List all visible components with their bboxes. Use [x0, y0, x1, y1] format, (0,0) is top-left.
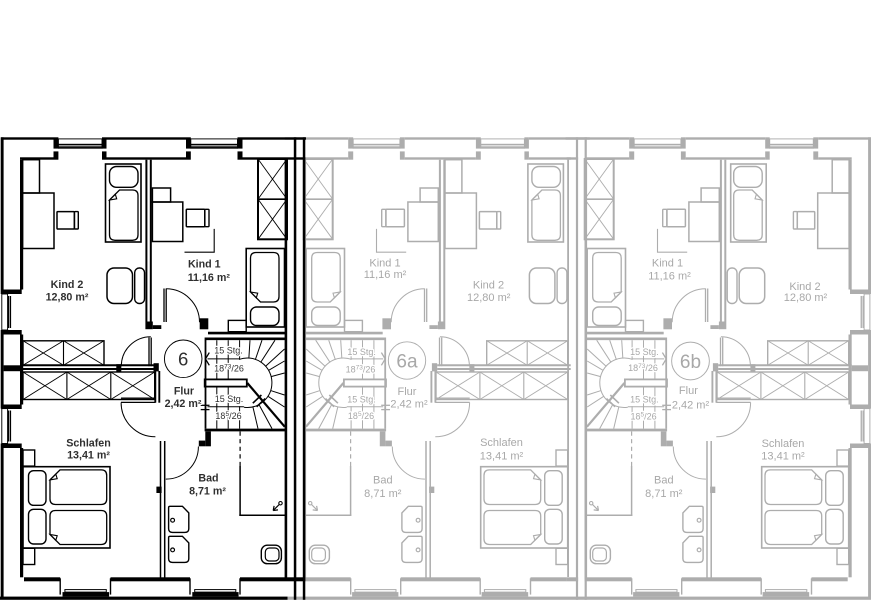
svg-text:6b: 6b: [680, 352, 701, 373]
svg-text:Bad: Bad: [198, 473, 218, 485]
svg-text:15 Stg.: 15 Stg.: [214, 346, 243, 356]
svg-text:8,71 m²: 8,71 m²: [645, 488, 683, 500]
svg-text:Schlafen: Schlafen: [762, 438, 805, 450]
svg-text:185/26: 185/26: [348, 411, 374, 421]
svg-text:2,42 m²: 2,42 m²: [672, 399, 710, 411]
svg-text:1873/26: 1873/26: [214, 364, 244, 374]
svg-text:Kind 1: Kind 1: [369, 258, 400, 270]
svg-text:Bad: Bad: [654, 474, 674, 486]
svg-text:Kind 2: Kind 2: [789, 281, 820, 293]
svg-text:Kind 1: Kind 1: [188, 259, 221, 271]
svg-text:15 Stg.: 15 Stg.: [347, 395, 376, 405]
svg-text:15 Stg.: 15 Stg.: [347, 347, 376, 357]
svg-text:Flur: Flur: [398, 386, 417, 398]
svg-text:12,80 m²: 12,80 m²: [467, 292, 511, 304]
svg-text:Kind 2: Kind 2: [51, 279, 84, 291]
svg-text:13,41 m²: 13,41 m²: [67, 449, 110, 461]
svg-text:12,80 m²: 12,80 m²: [46, 291, 89, 303]
svg-text:8,71 m²: 8,71 m²: [189, 485, 226, 497]
svg-text:15 Stg.: 15 Stg.: [630, 395, 659, 405]
svg-text:13,41 m²: 13,41 m²: [761, 451, 805, 463]
svg-text:1873/26: 1873/26: [346, 365, 376, 375]
svg-text:6: 6: [178, 348, 188, 369]
svg-text:8,71 m²: 8,71 m²: [364, 488, 402, 500]
svg-text:Flur: Flur: [679, 385, 698, 397]
svg-text:Schlafen: Schlafen: [480, 437, 523, 449]
svg-text:13,41 m²: 13,41 m²: [480, 450, 524, 462]
svg-text:Flur: Flur: [174, 386, 194, 398]
svg-text:11,16 m²: 11,16 m²: [188, 272, 231, 284]
svg-text:185/26: 185/26: [215, 411, 241, 421]
svg-text:15 Stg.: 15 Stg.: [630, 347, 659, 357]
svg-text:15 Stg.: 15 Stg.: [215, 394, 244, 404]
svg-text:6a: 6a: [396, 351, 418, 372]
svg-text:Bad: Bad: [373, 474, 393, 486]
svg-text:1873/26: 1873/26: [628, 363, 658, 373]
svg-text:Schlafen: Schlafen: [66, 437, 111, 449]
svg-text:12,80 m²: 12,80 m²: [784, 292, 828, 304]
svg-text:2,42 m²: 2,42 m²: [165, 398, 202, 410]
svg-text:11,16 m²: 11,16 m²: [648, 271, 691, 283]
svg-text:2,42 m²: 2,42 m²: [390, 398, 428, 410]
svg-text:Kind 2: Kind 2: [473, 279, 504, 291]
svg-text:11,16 m²: 11,16 m²: [364, 269, 407, 281]
svg-text:185/26: 185/26: [631, 412, 657, 422]
svg-text:Kind 1: Kind 1: [652, 258, 683, 270]
